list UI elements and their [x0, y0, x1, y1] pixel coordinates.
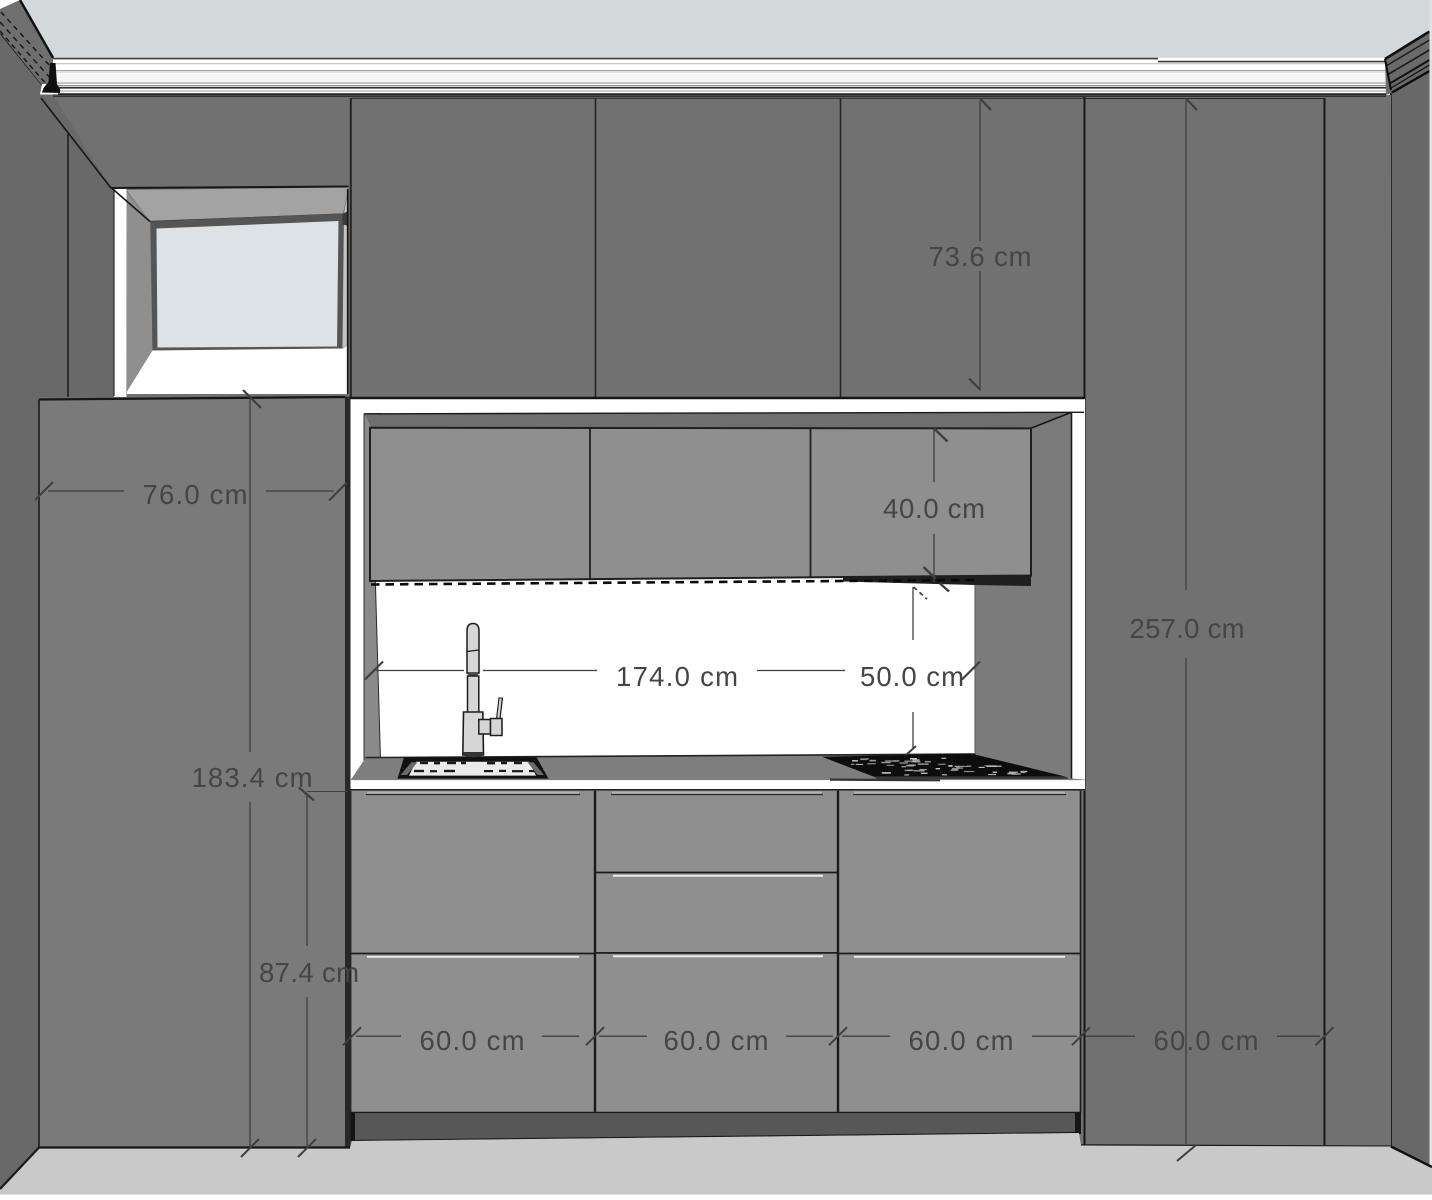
svg-text:73.6 cm: 73.6 cm	[929, 241, 1032, 272]
svg-text:87.4 cm: 87.4 cm	[259, 957, 359, 988]
svg-text:76.0 cm: 76.0 cm	[143, 479, 248, 510]
svg-text:60.0 cm: 60.0 cm	[664, 1025, 769, 1056]
svg-text:50.0 cm: 50.0 cm	[860, 661, 964, 692]
svg-text:60.0 cm: 60.0 cm	[1154, 1025, 1259, 1056]
svg-text:40.0 cm: 40.0 cm	[883, 493, 985, 524]
svg-text:183.4 cm: 183.4 cm	[192, 762, 313, 793]
svg-text:174.0 cm: 174.0 cm	[616, 661, 738, 692]
svg-text:60.0 cm: 60.0 cm	[420, 1025, 525, 1056]
svg-text:257.0 cm: 257.0 cm	[1130, 613, 1245, 644]
svg-text:60.0 cm: 60.0 cm	[909, 1025, 1014, 1056]
